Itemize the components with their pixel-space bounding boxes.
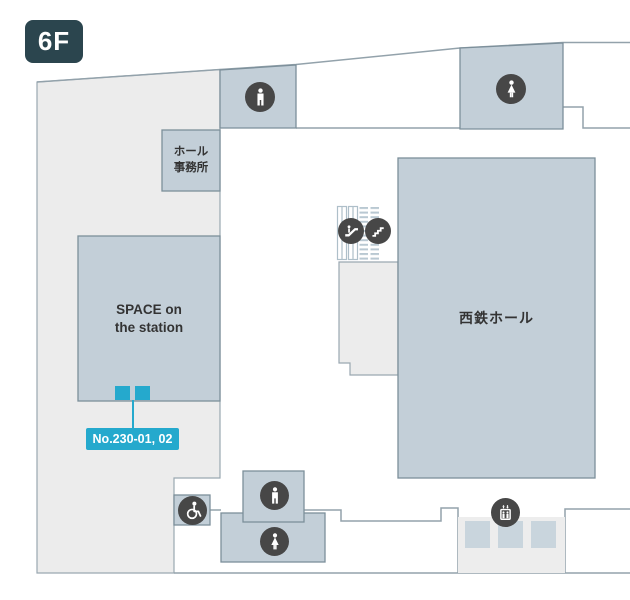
- unit-marker-230-01[interactable]: [115, 386, 130, 400]
- unit-tag-connector: [132, 400, 134, 428]
- womens-restroom-icon: [496, 74, 526, 104]
- unit-number-tag[interactable]: No.230-01, 02: [86, 428, 179, 450]
- mens-restroom-icon: [245, 82, 275, 112]
- wheelchair-icon: [178, 496, 207, 525]
- stairs-icon: [365, 218, 391, 244]
- unit-number-text: No.230-01, 02: [93, 432, 173, 446]
- floor-badge: 6F: [25, 20, 83, 63]
- elevator-shaft: [531, 521, 556, 548]
- hall-office-room: [162, 130, 220, 191]
- floor-block-center: [339, 262, 398, 375]
- outline-bottomright: [565, 509, 630, 573]
- nishitetsu-hall-room: [398, 158, 595, 478]
- mens-restroom-icon: [260, 481, 289, 510]
- space-on-the-station-room[interactable]: [78, 236, 220, 401]
- elevator-icon: [491, 498, 520, 527]
- outline-notch-topright: [563, 107, 630, 128]
- womens-restroom-icon: [260, 527, 289, 556]
- unit-marker-230-02[interactable]: [135, 386, 150, 400]
- outline-corridor-bottom: [304, 508, 458, 573]
- floor-map-6f: 6F ホール 事務所 SPACE on the station 西鉄ホール No…: [0, 0, 630, 600]
- floor-plan-drawing: [0, 0, 630, 600]
- escalator-icon: [338, 218, 364, 244]
- elevator-shaft: [465, 521, 490, 548]
